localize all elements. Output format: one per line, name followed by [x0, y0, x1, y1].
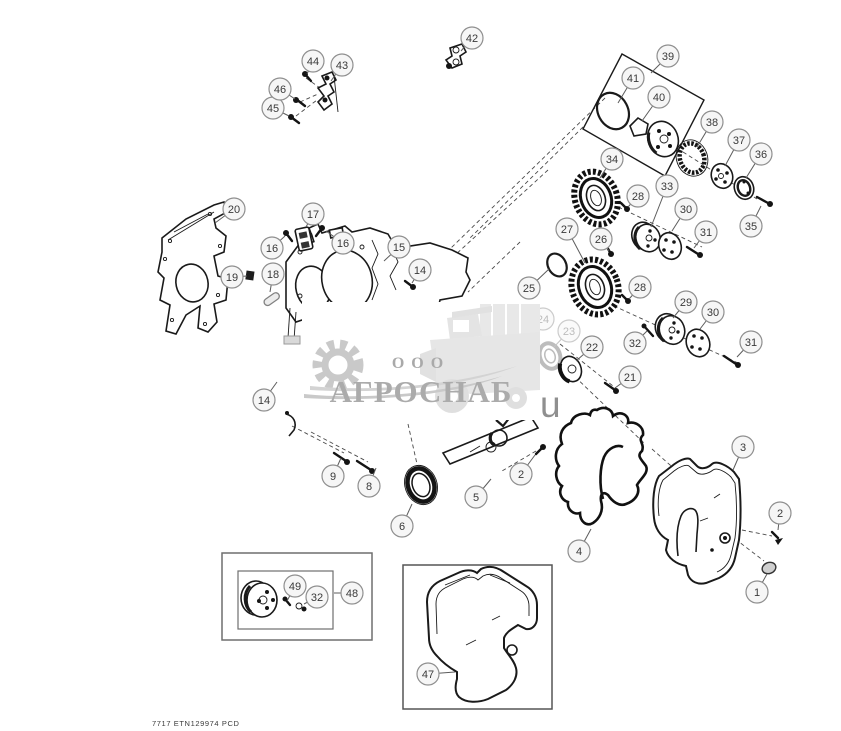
- svg-text:30: 30: [707, 307, 719, 319]
- callout-34: 34: [600, 148, 623, 178]
- callout-28: 28: [627, 185, 649, 207]
- svg-text:26: 26: [595, 234, 607, 246]
- part-sensor-bracket-42: [446, 44, 466, 69]
- watermark-url-suffix: u: [540, 384, 561, 426]
- callout-25: 25: [518, 269, 549, 299]
- part-bolt-44: [302, 71, 311, 81]
- svg-text:31: 31: [745, 337, 757, 349]
- svg-text:35: 35: [745, 221, 757, 233]
- part-plate-36: [731, 174, 757, 202]
- svg-text:25: 25: [523, 283, 535, 295]
- part-nut-19: [245, 270, 254, 280]
- part-bolt-16-left: [283, 230, 292, 241]
- part-thrust-plate-40: [630, 118, 648, 136]
- callout-14: 14: [253, 382, 277, 411]
- part-plug-1: [761, 560, 778, 575]
- part-bolt-35: [757, 197, 773, 207]
- callout-5: 5: [465, 479, 491, 508]
- svg-text:20: 20: [228, 204, 240, 216]
- svg-text:15: 15: [393, 242, 405, 254]
- svg-text:16: 16: [266, 243, 278, 255]
- callout-33: 33: [651, 175, 678, 227]
- svg-text:21: 21: [624, 372, 636, 384]
- callout-31: 31: [694, 221, 717, 248]
- svg-text:40: 40: [653, 92, 665, 104]
- svg-text:42: 42: [466, 33, 478, 45]
- callout-29: 29: [673, 291, 697, 318]
- part-hub-33: [628, 219, 664, 256]
- callout-32: 32: [624, 331, 647, 354]
- svg-text:30: 30: [680, 204, 692, 216]
- svg-text:32: 32: [311, 592, 323, 604]
- callout-30: 30: [672, 198, 697, 231]
- callout-31: 31: [737, 331, 762, 357]
- callout-16: 16: [261, 236, 285, 259]
- callout-18: 18: [262, 263, 284, 292]
- callout-36: 36: [746, 143, 772, 178]
- callout-26: 26: [590, 228, 612, 251]
- part-bracket-43: [318, 72, 338, 112]
- callout-43: 43: [331, 54, 353, 81]
- callout-4: 4: [568, 529, 591, 562]
- watermark-org-type: ООО: [302, 355, 540, 373]
- callout-37: 37: [725, 129, 750, 166]
- svg-text:39: 39: [662, 51, 674, 63]
- svg-text:49: 49: [289, 581, 301, 593]
- svg-text:45: 45: [267, 103, 279, 115]
- part-bolt-8: [357, 461, 375, 474]
- callout-39: 39: [651, 45, 679, 73]
- svg-text:1: 1: [754, 587, 760, 599]
- callout-2: 2: [769, 502, 791, 530]
- svg-text:34: 34: [606, 154, 618, 166]
- svg-text:3: 3: [740, 442, 746, 454]
- part-cam-gear-34: [567, 165, 625, 230]
- callout-8: 8: [358, 468, 380, 497]
- part-bolt-21: [605, 383, 619, 394]
- svg-text:22: 22: [586, 342, 598, 354]
- part-damper-49: [241, 581, 277, 617]
- part-bolt-31-lower: [724, 356, 741, 368]
- callout-42: 42: [461, 27, 483, 51]
- svg-text:38: 38: [706, 117, 718, 129]
- svg-text:27: 27: [561, 224, 573, 236]
- svg-text:23: 23: [563, 326, 575, 338]
- drawing-code: 7717 ETN129974 PCD: [152, 719, 240, 728]
- svg-text:19: 19: [226, 272, 238, 284]
- part-bolt-26: [607, 247, 614, 257]
- part-crank-gear-27: [564, 253, 626, 321]
- svg-text:43: 43: [336, 60, 348, 72]
- callout-35: 35: [740, 206, 762, 237]
- part-bolt-28-upper: [621, 203, 630, 212]
- parts-diagram-page: 1223456891414151616171819202122232425262…: [0, 0, 841, 731]
- svg-text:8: 8: [366, 481, 372, 493]
- part-timing-cover-3: [653, 458, 740, 583]
- svg-text:28: 28: [634, 282, 646, 294]
- part-crank-seal-6: [399, 461, 443, 510]
- svg-text:37: 37: [733, 135, 745, 147]
- svg-text:2: 2: [777, 508, 783, 520]
- svg-text:14: 14: [414, 265, 426, 277]
- svg-text:31: 31: [700, 227, 712, 239]
- svg-text:14: 14: [258, 395, 270, 407]
- callout-28: 28: [629, 276, 651, 299]
- callout-6: 6: [391, 504, 413, 537]
- part-hook-14-lower: [285, 411, 295, 436]
- svg-text:41: 41: [627, 73, 639, 85]
- svg-text:16: 16: [337, 238, 349, 250]
- svg-text:5: 5: [473, 492, 479, 504]
- callout-9: 9: [322, 458, 344, 487]
- callout-22: 22: [576, 336, 603, 361]
- svg-text:44: 44: [307, 56, 319, 68]
- part-timing-plate-20: [158, 202, 228, 334]
- part-gasket-4: [556, 408, 647, 524]
- callout-23: 23: [554, 320, 580, 347]
- part-plate-30-lower: [682, 326, 713, 360]
- inset-box-47: [403, 565, 552, 709]
- callout-46: 46: [269, 78, 295, 100]
- svg-text:29: 29: [680, 297, 692, 309]
- callout-44: 44: [302, 50, 324, 74]
- part-bolt-2-left: [536, 444, 546, 454]
- svg-text:46: 46: [274, 84, 286, 96]
- part-bolt-28-lower: [622, 295, 631, 304]
- callout-17: 17: [302, 203, 324, 227]
- part-bolt-31-upper: [687, 247, 703, 258]
- part-bolt-9: [334, 453, 350, 465]
- svg-text:2: 2: [518, 469, 524, 481]
- svg-text:18: 18: [267, 269, 279, 281]
- svg-text:48: 48: [346, 588, 358, 600]
- callout-1: 1: [746, 574, 768, 603]
- part-hub-29: [651, 310, 688, 348]
- callout-21: 21: [615, 366, 641, 388]
- callout-30: 30: [700, 301, 724, 329]
- part-bolt-2-right: [772, 532, 783, 545]
- svg-text:9: 9: [330, 471, 336, 483]
- callout-3: 3: [732, 436, 754, 470]
- svg-text:36: 36: [755, 149, 767, 161]
- part-oring-25: [543, 250, 570, 280]
- watermark: ООО АГРОСНАБ: [302, 302, 540, 420]
- svg-text:28: 28: [632, 191, 644, 203]
- part-dowel-pin-18: [263, 291, 281, 306]
- callout-2: 2: [510, 455, 535, 485]
- svg-text:33: 33: [661, 181, 673, 193]
- svg-text:4: 4: [576, 546, 582, 558]
- svg-text:32: 32: [629, 338, 641, 350]
- callout-19: 19: [221, 266, 247, 288]
- callout-40: 40: [642, 86, 670, 121]
- callout-45: 45: [262, 97, 289, 119]
- part-hub-37: [708, 161, 736, 192]
- watermark-company-name: АГРОСНАБ: [302, 374, 540, 410]
- callout-38: 38: [697, 111, 723, 147]
- part-oring-41: [591, 87, 635, 135]
- svg-text:17: 17: [307, 209, 319, 221]
- svg-text:47: 47: [422, 669, 434, 681]
- svg-text:6: 6: [399, 521, 405, 533]
